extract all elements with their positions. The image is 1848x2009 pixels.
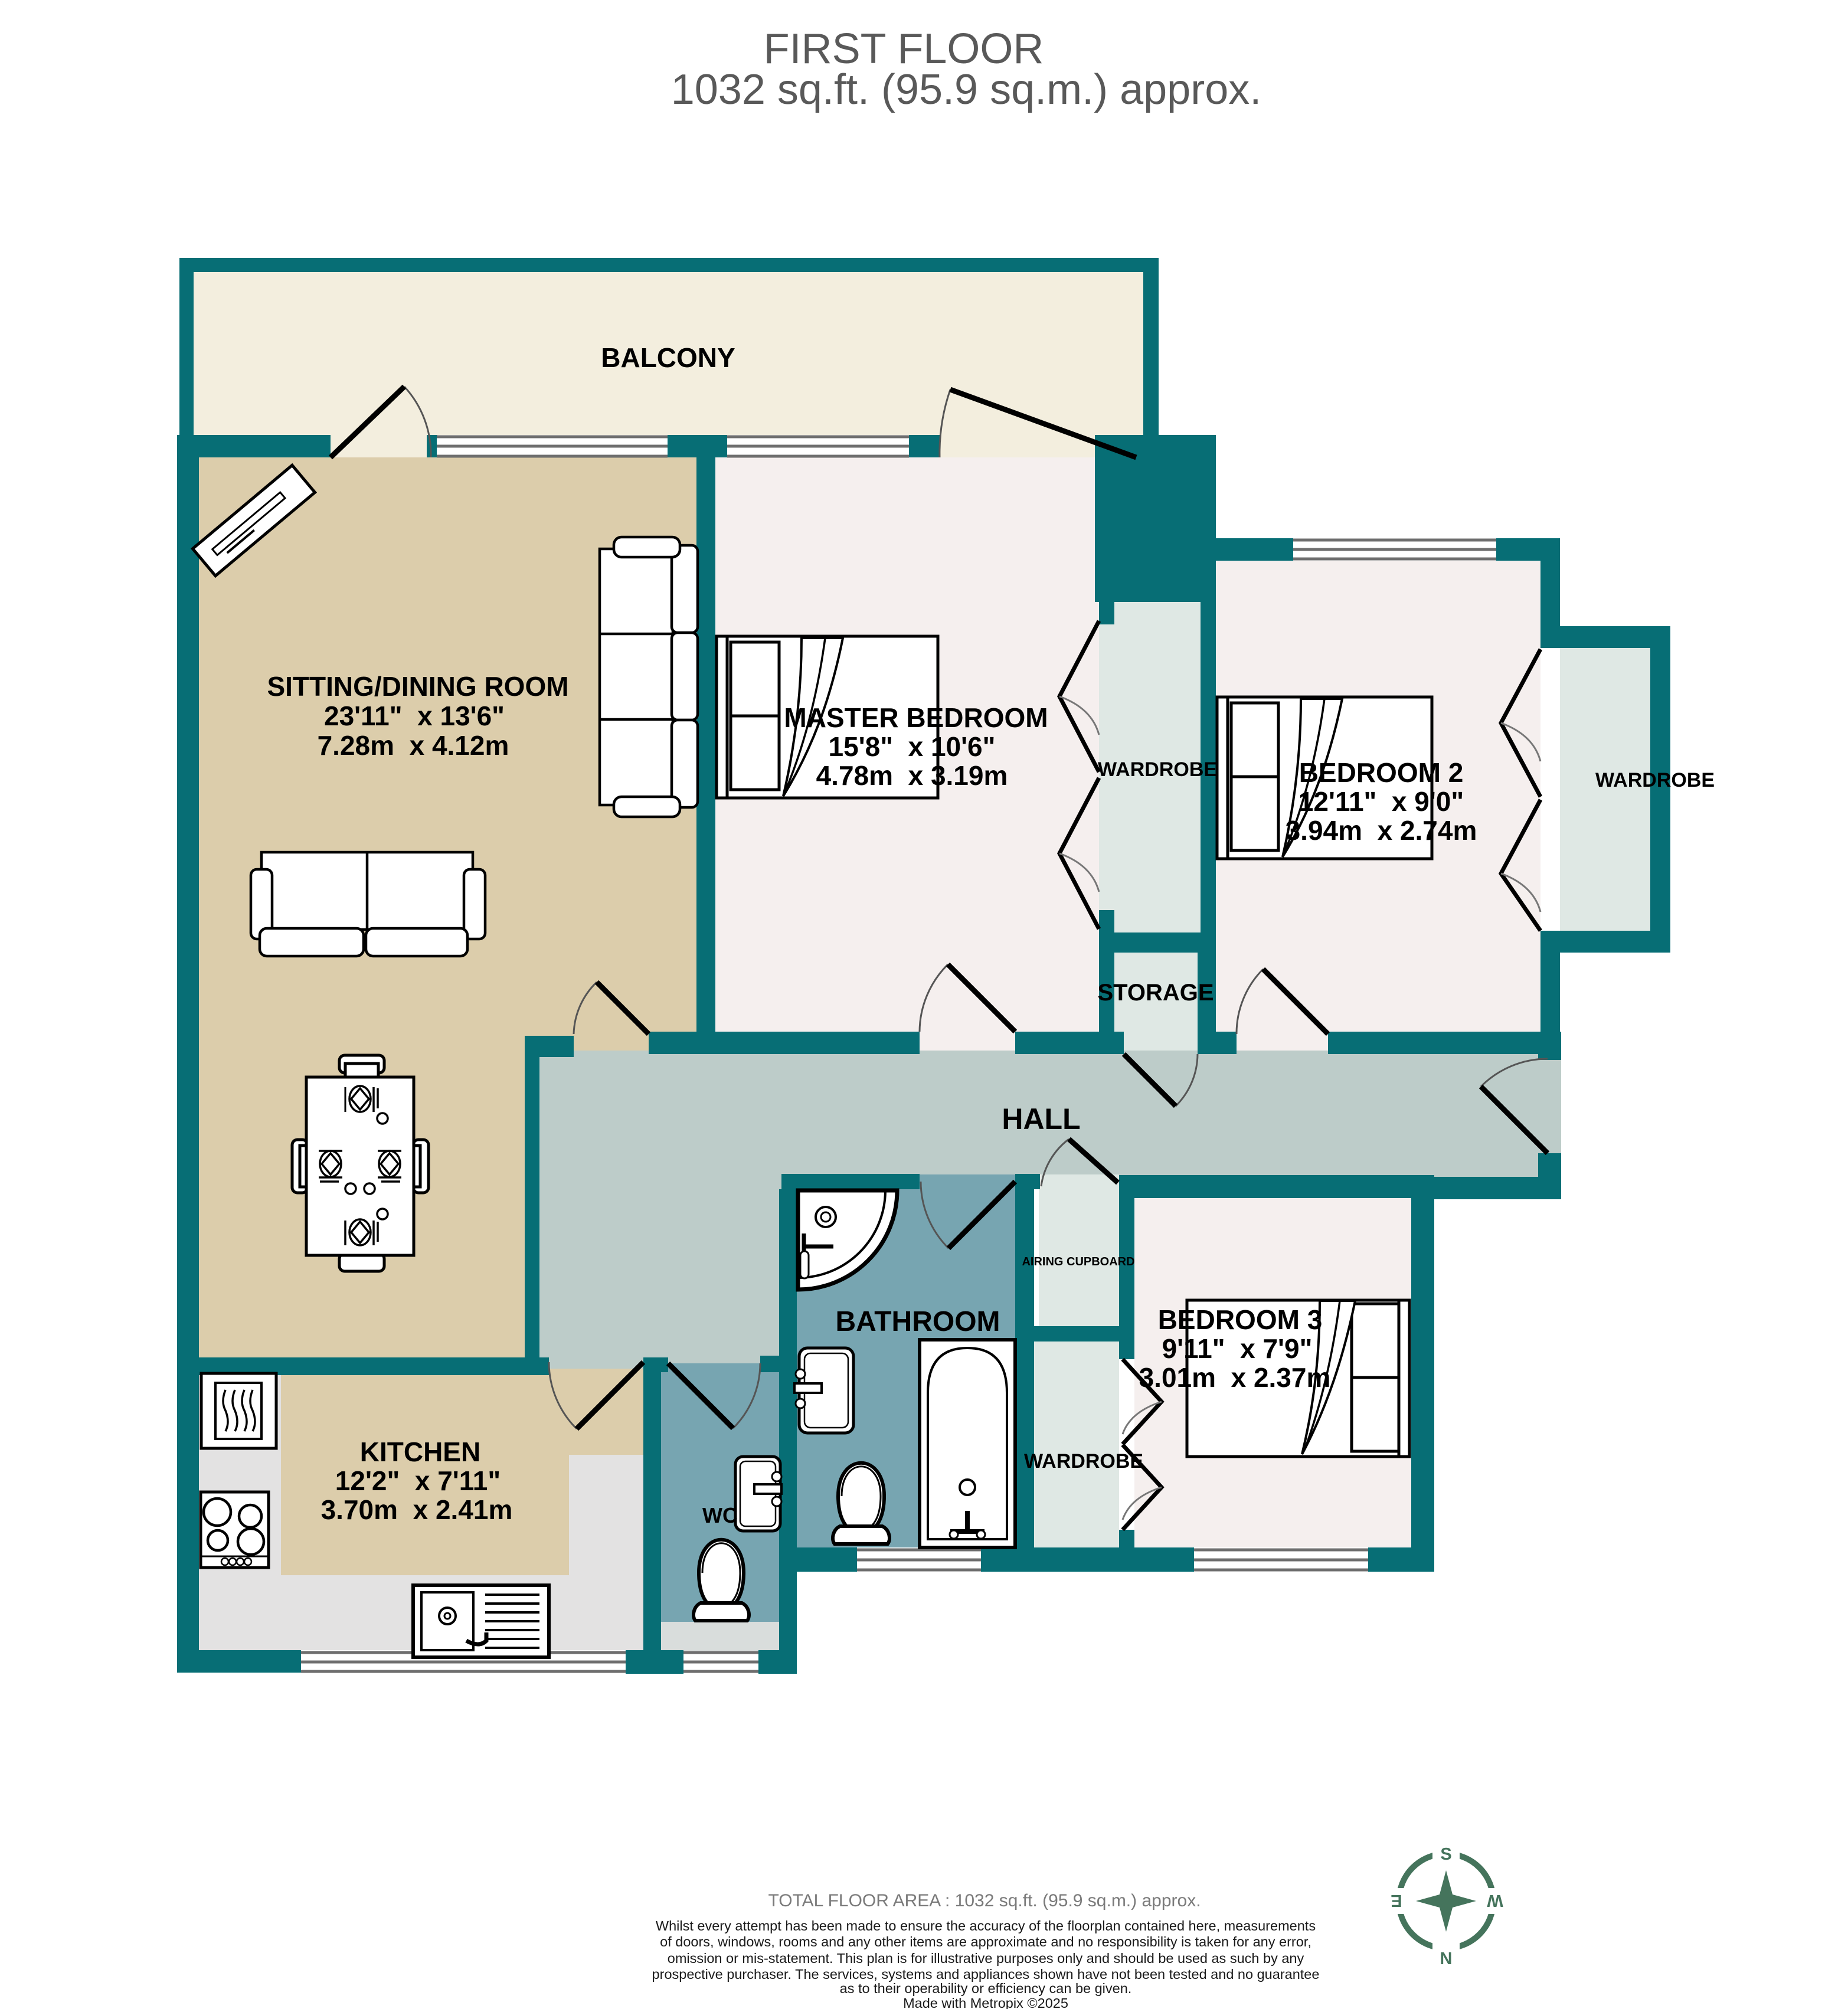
svg-text:12'11" x 9'0": 12'11" x 9'0" — [1298, 786, 1464, 817]
svg-text:E: E — [1391, 1891, 1402, 1910]
svg-text:3.94m x 2.74m: 3.94m x 2.74m — [1286, 815, 1477, 846]
svg-text:WARDROBE: WARDROBE — [1098, 758, 1217, 781]
svg-text:prospective purchaser. The ser: prospective purchaser. The services, sys… — [652, 1967, 1320, 1982]
svg-text:4.78m x 3.19m: 4.78m x 3.19m — [816, 760, 1008, 791]
svg-text:MASTER BEDROOM: MASTER BEDROOM — [784, 702, 1048, 733]
svg-text:3.01m x 2.37m: 3.01m x 2.37m — [1139, 1362, 1331, 1393]
svg-text:FIRST FLOOR: FIRST FLOOR — [764, 25, 1044, 73]
svg-text:12'2" x 7'11": 12'2" x 7'11" — [335, 1465, 501, 1496]
svg-text:15'8" x 10'6": 15'8" x 10'6" — [829, 731, 996, 762]
svg-text:of doors, windows, rooms and a: of doors, windows, rooms and any other i… — [660, 1934, 1311, 1949]
svg-text:TOTAL FLOOR AREA : 1032 sq.ft.: TOTAL FLOOR AREA : 1032 sq.ft. (95.9 sq.… — [768, 1891, 1201, 1910]
svg-text:S: S — [1440, 1845, 1451, 1864]
svg-text:SITTING/DINING ROOM: SITTING/DINING ROOM — [267, 671, 568, 702]
svg-text:BEDROOM 2: BEDROOM 2 — [1299, 757, 1464, 788]
svg-text:HALL: HALL — [1002, 1102, 1080, 1136]
svg-text:KITCHEN: KITCHEN — [360, 1437, 480, 1467]
svg-text:WARDROBE: WARDROBE — [1024, 1450, 1143, 1473]
svg-text:N: N — [1440, 1949, 1453, 1968]
svg-text:STORAGE: STORAGE — [1097, 980, 1214, 1006]
svg-text:BEDROOM 3: BEDROOM 3 — [1158, 1304, 1323, 1335]
svg-text:9'11" x 7'9": 9'11" x 7'9" — [1162, 1333, 1313, 1364]
svg-text:Made with Metropix ©2025: Made with Metropix ©2025 — [903, 1995, 1068, 2009]
svg-text:3.70m x 2.41m: 3.70m x 2.41m — [321, 1494, 513, 1525]
svg-text:Whilst every attempt has been: Whilst every attempt has been made to en… — [656, 1918, 1316, 1933]
svg-text:1032 sq.ft. (95.9 sq.m.) appro: 1032 sq.ft. (95.9 sq.m.) approx. — [671, 66, 1262, 113]
svg-text:WC: WC — [702, 1503, 738, 1527]
svg-text:omission or mis-statement. Thi: omission or mis-statement. This plan is … — [668, 1951, 1304, 1966]
svg-text:as to their operability or eff: as to their operability or efficiency ca… — [840, 1981, 1132, 1996]
svg-text:BATHROOM: BATHROOM — [835, 1306, 1000, 1337]
svg-text:7.28m x 4.12m: 7.28m x 4.12m — [318, 730, 509, 761]
svg-text:23'11" x 13'6": 23'11" x 13'6" — [324, 701, 505, 731]
svg-text:BALCONY: BALCONY — [601, 342, 735, 373]
svg-text:AIRING CUPBOARD: AIRING CUPBOARD — [1022, 1255, 1134, 1268]
svg-text:W: W — [1487, 1891, 1503, 1910]
svg-text:WARDROBE: WARDROBE — [1595, 769, 1715, 791]
